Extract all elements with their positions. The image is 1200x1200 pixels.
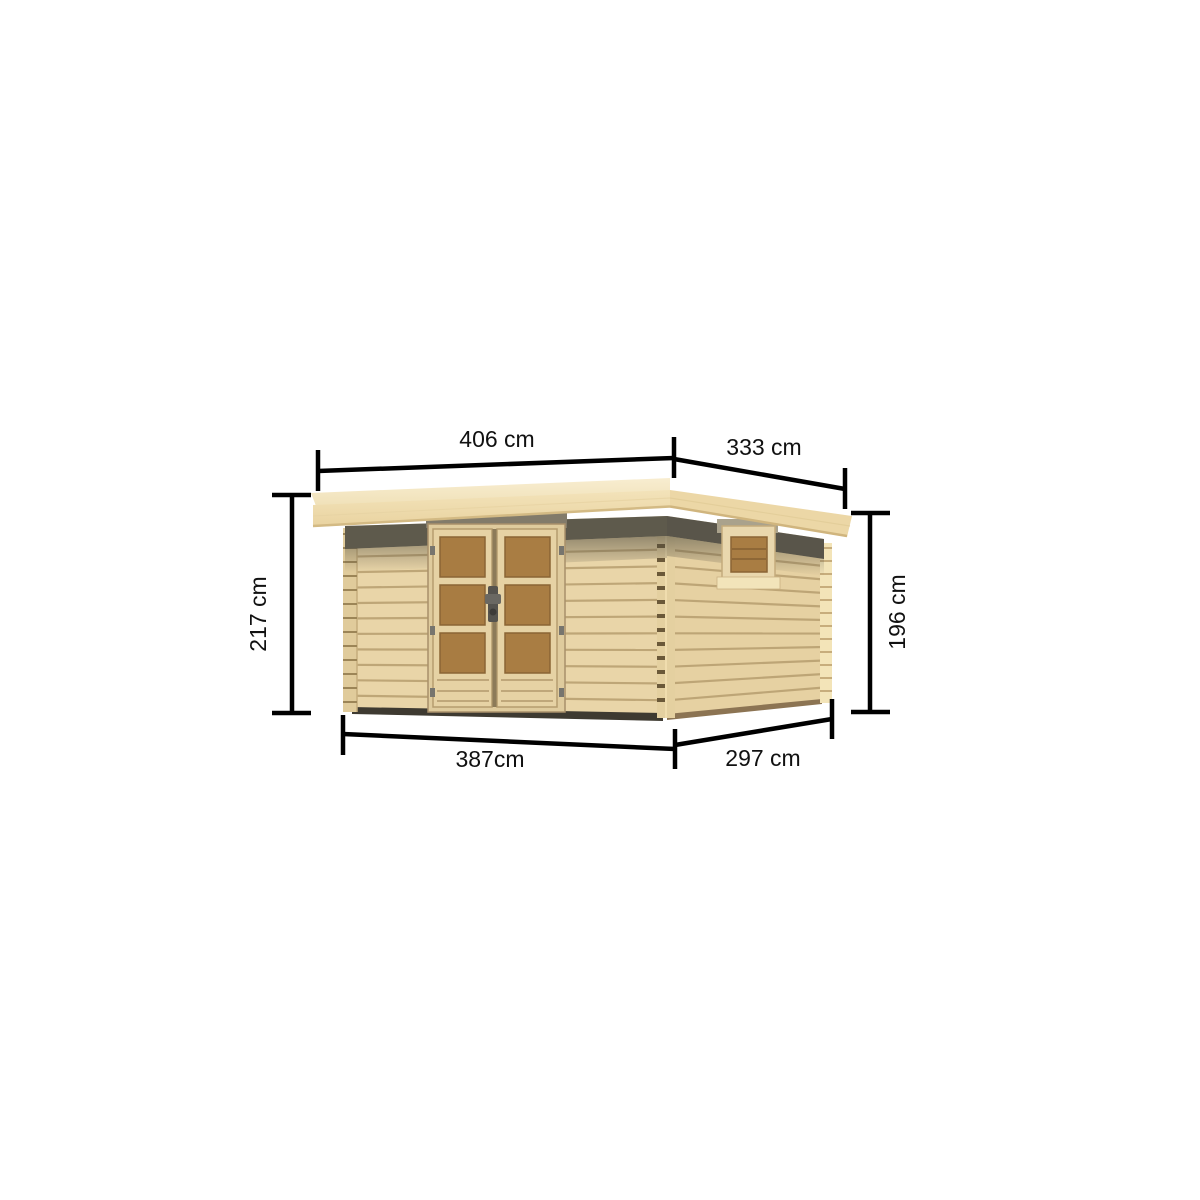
dimension-overall-height: 217 cm xyxy=(245,495,311,713)
base-width-label: 387cm xyxy=(455,746,524,772)
product-diagram-canvas: 406 cm 333 cm 217 cm 196 cm 387cm 297 cm xyxy=(0,0,1200,1200)
window-sill xyxy=(717,577,780,589)
base-depth-label: 297 cm xyxy=(725,745,800,771)
side-window xyxy=(717,519,780,589)
shed-dimension-diagram: 406 cm 333 cm 217 cm 196 cm 387cm 297 cm xyxy=(0,0,1200,1200)
dimension-base-width: 387cm xyxy=(343,715,675,772)
roof-width-label: 406 cm xyxy=(459,426,534,452)
overall-height-label: 217 cm xyxy=(245,576,271,651)
dimension-wall-height: 196 cm xyxy=(851,513,910,712)
roof-depth-label: 333 cm xyxy=(726,434,801,460)
double-door xyxy=(426,512,567,712)
door-glass-panes-left xyxy=(440,537,485,673)
wall-height-label: 196 cm xyxy=(884,574,910,649)
shed-illustration xyxy=(311,478,852,721)
door-glass-panes-right xyxy=(505,537,550,673)
window-pane xyxy=(731,537,767,572)
